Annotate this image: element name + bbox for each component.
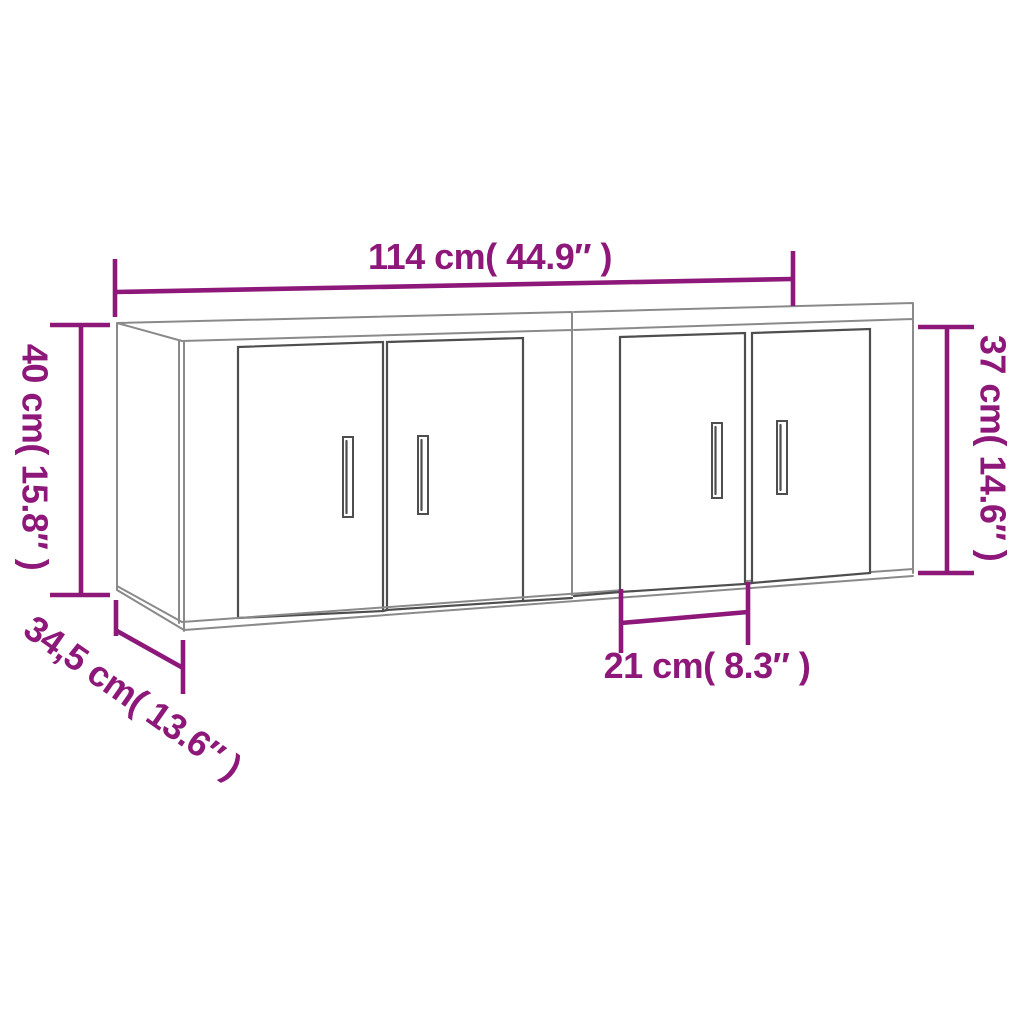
- dimension-right-height: 37 cm( 14.6″ ): [918, 327, 1014, 573]
- dimension-line: [117, 631, 183, 668]
- dimension-line: [115, 279, 793, 292]
- dimension-line: [621, 612, 748, 623]
- dimension-diagram-page: 114 cm( 44.9″ ) 40 cm( 15.8″ ) 37 cm( 14…: [0, 0, 1024, 1024]
- cabinet-left: [117, 312, 572, 631]
- cabinet-left-door-left: [238, 342, 383, 618]
- left-height-label: 40 cm( 15.8″ ): [15, 344, 56, 570]
- cabinet-left-door-right: [387, 338, 523, 610]
- door-width-label: 21 cm( 8.3″ ): [604, 645, 811, 686]
- total-width-label: 114 cm( 44.9″ ): [368, 236, 612, 277]
- right-height-label: 37 cm( 14.6″ ): [973, 335, 1014, 561]
- cabinet-right-door-right: [752, 329, 870, 583]
- depth-label: 34,5 cm( 13.6″ ): [17, 607, 250, 787]
- dimension-left-height: 40 cm( 15.8″ ): [15, 325, 111, 595]
- door-handle: [343, 437, 353, 517]
- cabinet-dimension-diagram: 114 cm( 44.9″ ) 40 cm( 15.8″ ) 37 cm( 14…: [0, 0, 1024, 1024]
- door-handle: [712, 423, 722, 498]
- door-handle: [418, 436, 428, 514]
- door-handle: [777, 421, 787, 494]
- cabinet-right-door-left: [620, 333, 745, 592]
- dimension-total-width: 114 cm( 44.9″ ): [115, 236, 793, 317]
